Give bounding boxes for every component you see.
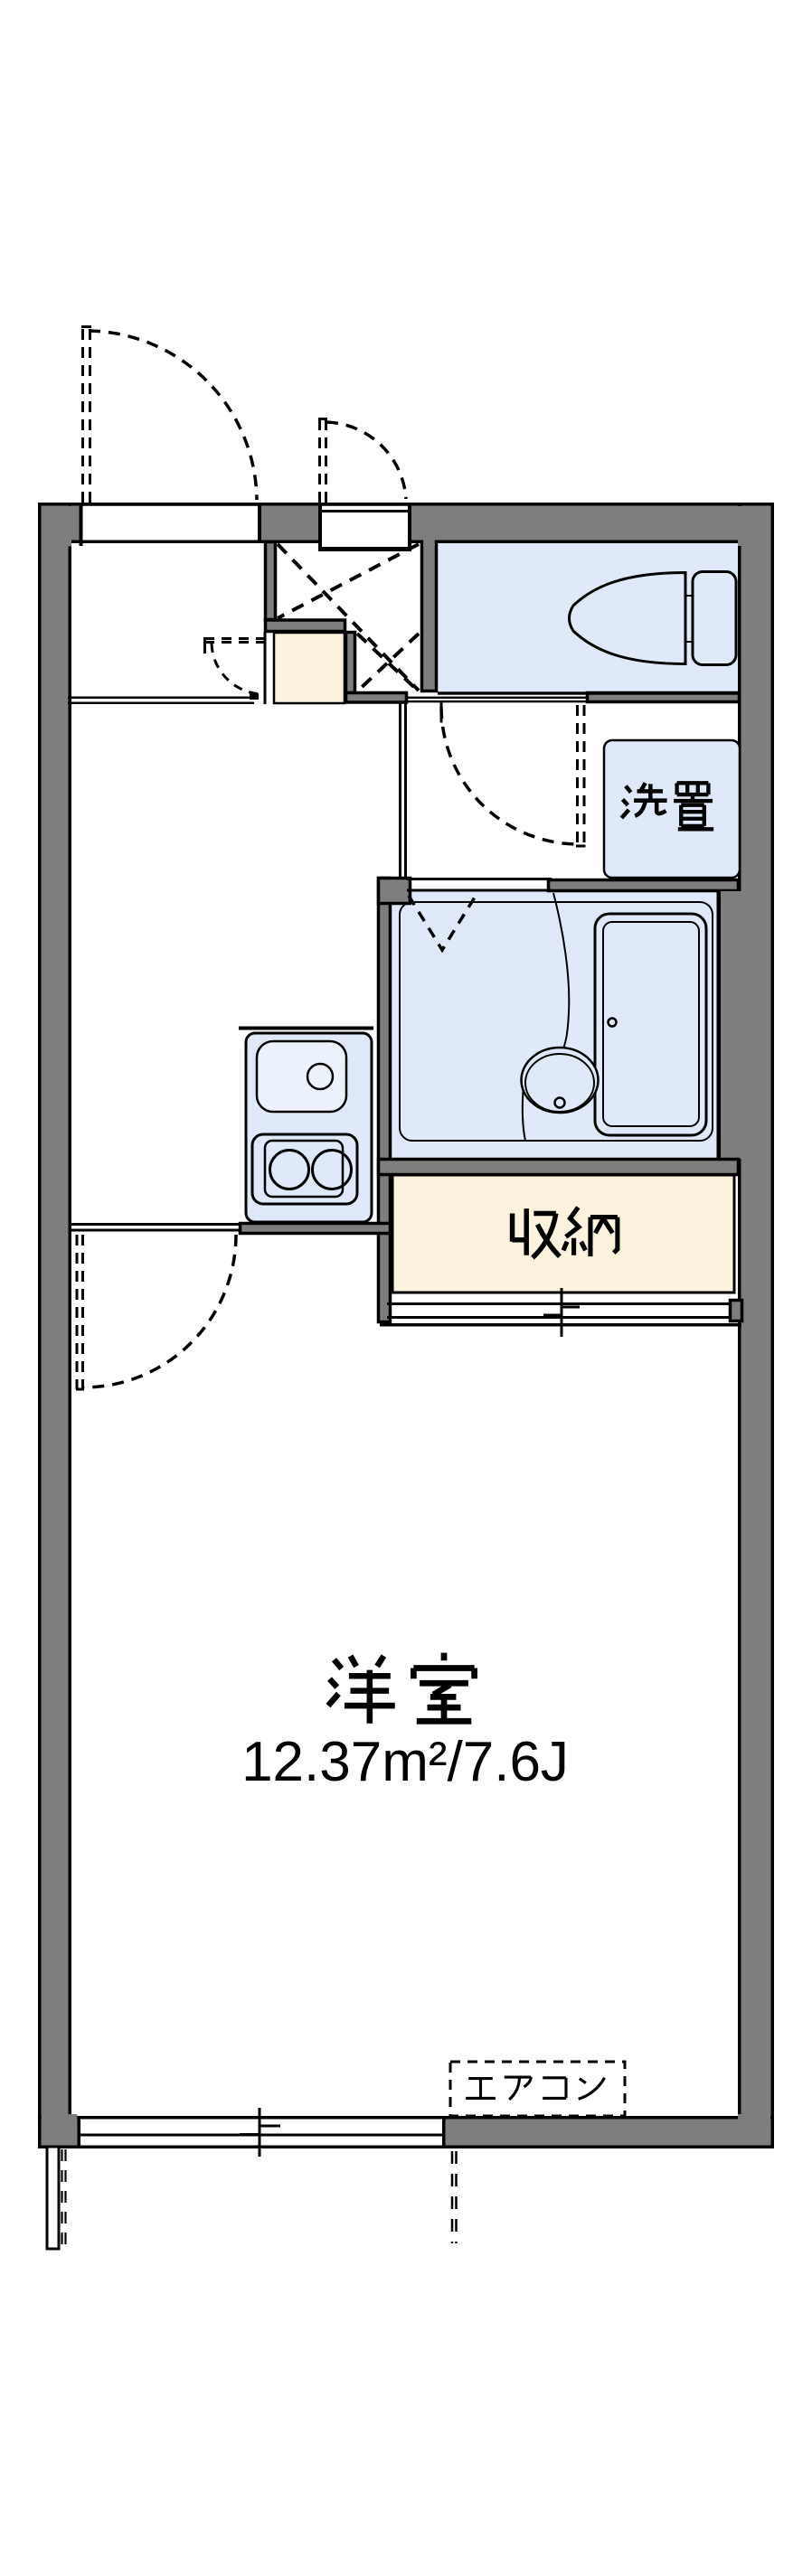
svg-text:12.37m²/7.6J: 12.37m²/7.6J — [241, 1731, 569, 1793]
